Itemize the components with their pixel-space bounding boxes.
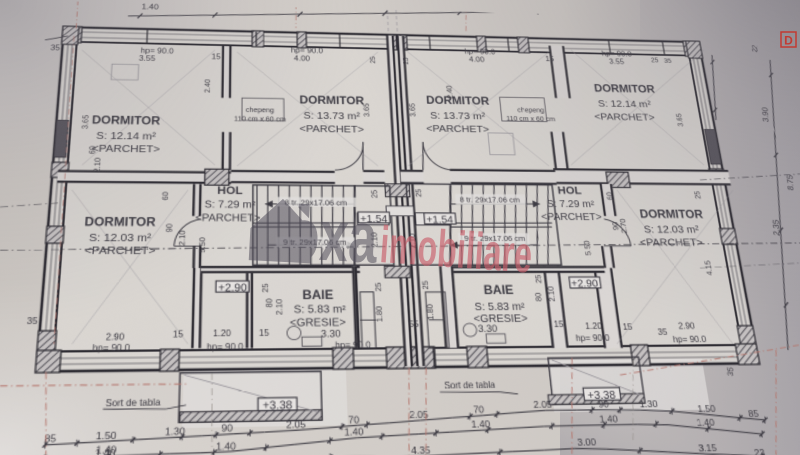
svg-text:D: D <box>784 34 793 48</box>
